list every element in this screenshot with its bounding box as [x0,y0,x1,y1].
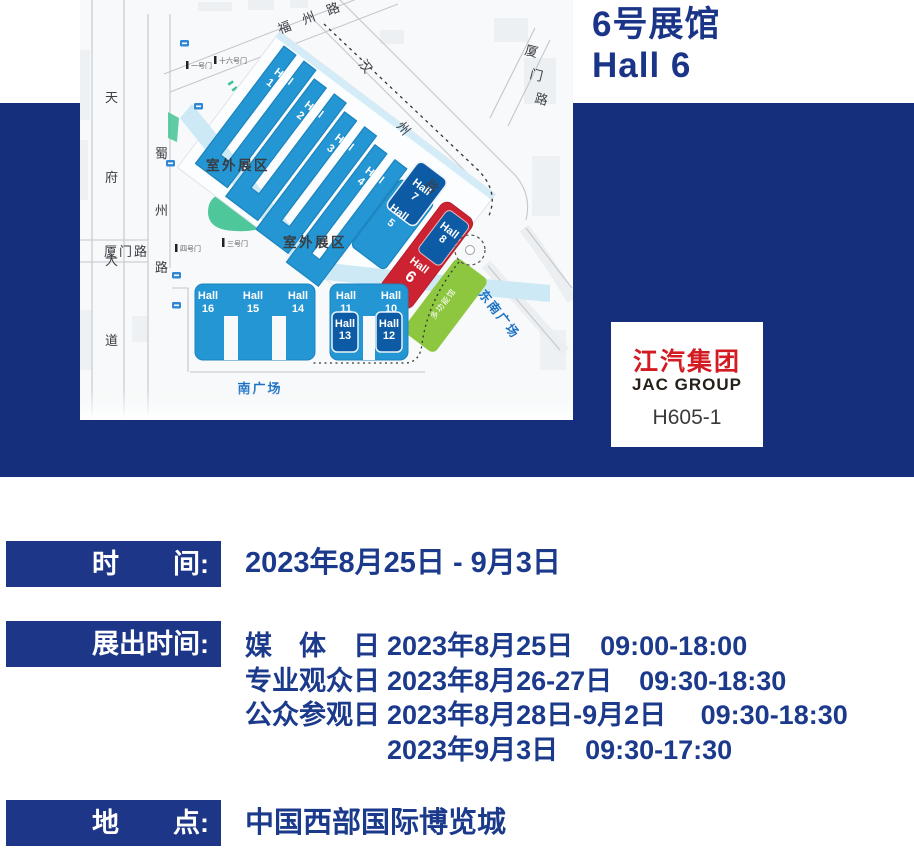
parking-icon [172,302,181,309]
parking-icon [172,272,181,279]
location-label-box: 地 点: [6,800,221,846]
jac-logo-en: JAC GROUP [611,375,763,394]
gate-1-label: 一号门 [191,61,212,70]
booth-number: H605-1 [611,406,763,430]
schedule-detail: 2023年8月26-27日 09:30-18:30 [387,666,786,696]
jac-logo-cn: 江汽集团 [611,349,763,375]
schedule-line: 2023年9月3日 09:30-17:30 [245,733,848,768]
schedule-day: 公众参观日 [245,698,387,733]
svg-text:汉: 汉 [356,57,376,76]
building-halls-16-15-14: Hall16 Hall15 Hall14 [195,284,315,360]
roundabout-center [466,246,475,255]
time-label-box: 时 间: [6,541,221,587]
parking-icon [180,40,189,47]
xiamen-road-left-label: 厦门路 [104,244,149,259]
svg-text:厦: 厦 [523,42,539,60]
map-bottom-fade [80,388,573,420]
schedule-line: 媒 体 日2023年8月25日 09:00-18:00 [245,629,848,664]
gate-4-label: 四号门 [180,244,201,253]
tianfu-avenue-label: 天府大道 [105,90,118,348]
venue-map: Hall1 Hall2 Hall3 Hall4 Hall5 Hall7 Hall… [80,0,573,420]
outdoor-area-2-label: 室外展区 [283,234,347,250]
schedule-detail: 2023年8月28日-9月2日 09:30-18:30 [387,700,848,730]
hall-title-cn: 6号展馆 [592,4,720,45]
outdoor-area-1-label: 室外展区 [206,157,270,173]
parking-icon [166,160,175,167]
venue-map-card: Hall1 Hall2 Hall3 Hall4 Hall5 Hall7 Hall… [80,0,573,420]
green-strip [168,112,179,142]
svg-text:路: 路 [533,90,549,108]
gate-16-label: 十六号门 [219,56,247,65]
fuzhou-road-label: 福州路 [276,0,354,37]
parking-icon [194,103,203,110]
schedule-day: 专业观众日 [245,664,387,699]
exhibitor-card: 江汽集团 JAC GROUP H605-1 [611,322,763,447]
time-value: 2023年8月25日 - 9月3日 [245,543,561,583]
schedule-line: 公众参观日2023年8月28日-9月2日 09:30-18:30 [245,698,848,733]
schedule-line: 专业观众日2023年8月26-27日 09:30-18:30 [245,664,848,699]
page-title: 6号展馆 Hall 6 [592,4,720,86]
gate-3-label: 三号门 [227,239,248,248]
building-halls-11-10: Hall11 Hall10 Hall13 Hall12 [330,284,408,360]
schedule-lines: 媒 体 日2023年8月25日 09:00-18:00 专业观众日2023年8月… [245,629,848,767]
hall-title-en: Hall 6 [592,45,720,86]
schedule-detail: 2023年9月3日 09:30-17:30 [387,735,732,765]
schedule-label-box: 展出时间: [6,621,221,667]
location-value: 中国西部国际博览城 [245,803,506,843]
schedule-detail: 2023年8月25日 09:00-18:00 [387,631,747,661]
schedule-day: 媒 体 日 [245,629,387,664]
